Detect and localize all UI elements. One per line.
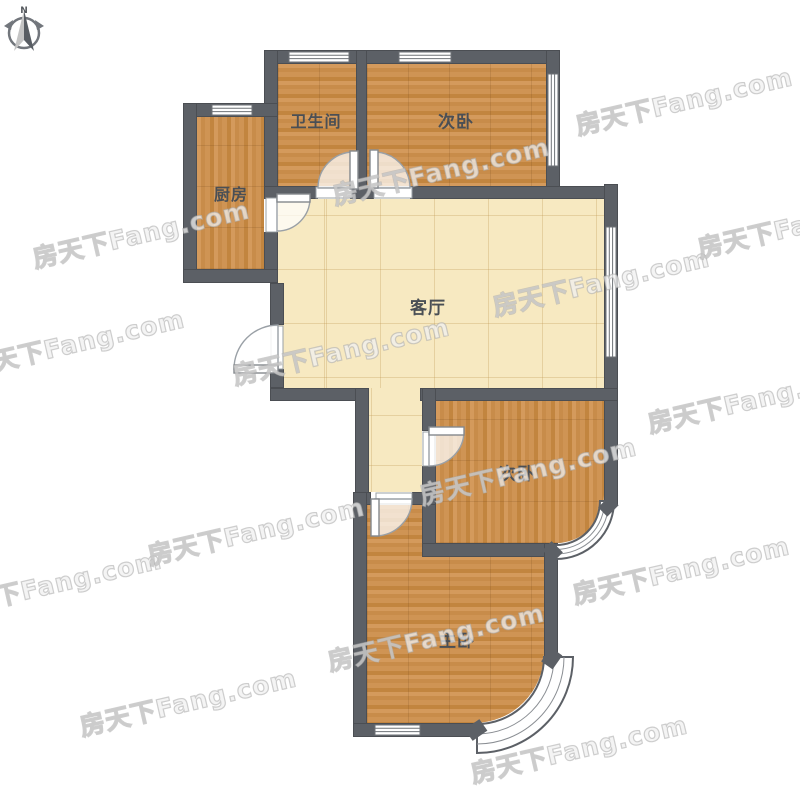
wall-segment bbox=[604, 184, 618, 505]
room-label-living-room: 客厅 bbox=[410, 294, 446, 319]
watermark: 房天下Fang.com bbox=[694, 181, 800, 266]
floor-hallway bbox=[369, 388, 422, 492]
room-label-bedroom-mid: 次卧 bbox=[499, 460, 535, 485]
wall-segment bbox=[356, 50, 367, 199]
wall-segment bbox=[270, 369, 284, 388]
room-label-bedroom-top: 次卧 bbox=[438, 108, 474, 133]
door-swing-arc bbox=[234, 325, 278, 369]
wall-segment bbox=[183, 103, 197, 283]
watermark: 房天下Fang.com bbox=[467, 706, 691, 791]
watermark: 房天下Fang.com bbox=[569, 527, 793, 612]
wall-segment bbox=[422, 543, 558, 557]
entry-door bbox=[234, 325, 283, 373]
door-sill bbox=[376, 493, 412, 504]
room-label-master-bedroom: 主卧 bbox=[439, 627, 475, 652]
wall-segment bbox=[546, 50, 560, 198]
wall-segment bbox=[353, 723, 480, 737]
wall-segment bbox=[183, 269, 278, 283]
wall-segment bbox=[353, 492, 367, 737]
watermark: 房天下Fang.com bbox=[144, 488, 368, 573]
watermark: 房天下Fang.com bbox=[76, 659, 300, 744]
door-sill bbox=[374, 187, 412, 198]
wall-segment bbox=[410, 186, 618, 199]
wall-segment bbox=[270, 283, 284, 325]
door-sill bbox=[316, 187, 352, 198]
compass-needle-dark bbox=[24, 10, 34, 51]
room-label-kitchen: 厨房 bbox=[214, 181, 248, 205]
compass-needle-light bbox=[14, 10, 24, 51]
wall-segment bbox=[422, 388, 436, 431]
watermark: 房天下Fang.com bbox=[572, 58, 796, 143]
compass-north-label: N bbox=[20, 6, 28, 16]
wall-segment bbox=[544, 543, 558, 657]
door-sill bbox=[423, 432, 435, 466]
wall-segment bbox=[412, 492, 436, 505]
door-sill bbox=[266, 198, 277, 232]
compass-ring-arrow-right bbox=[35, 20, 44, 30]
compass-icon: N bbox=[4, 6, 44, 51]
wall-segment bbox=[264, 50, 278, 198]
watermark: 房天下Fang.com bbox=[0, 541, 165, 626]
wall-segment bbox=[420, 388, 618, 401]
watermark: 房天下Fang.com bbox=[644, 356, 800, 441]
floor-plan: N 卫生间 次卧 厨房 客厅 次卧 主卧 房天下Fang.com 房天下Fang… bbox=[0, 0, 800, 800]
wall-segment bbox=[183, 103, 278, 117]
watermark: 房天下Fang.com bbox=[0, 300, 188, 385]
compass-ring-arrow-left bbox=[4, 20, 13, 30]
wall-segment bbox=[264, 50, 560, 64]
wall-segment bbox=[264, 186, 318, 199]
compass-ring bbox=[9, 18, 39, 48]
room-label-bathroom: 卫生间 bbox=[290, 108, 341, 132]
wall-segment bbox=[355, 388, 369, 505]
wall-segment bbox=[350, 186, 374, 199]
